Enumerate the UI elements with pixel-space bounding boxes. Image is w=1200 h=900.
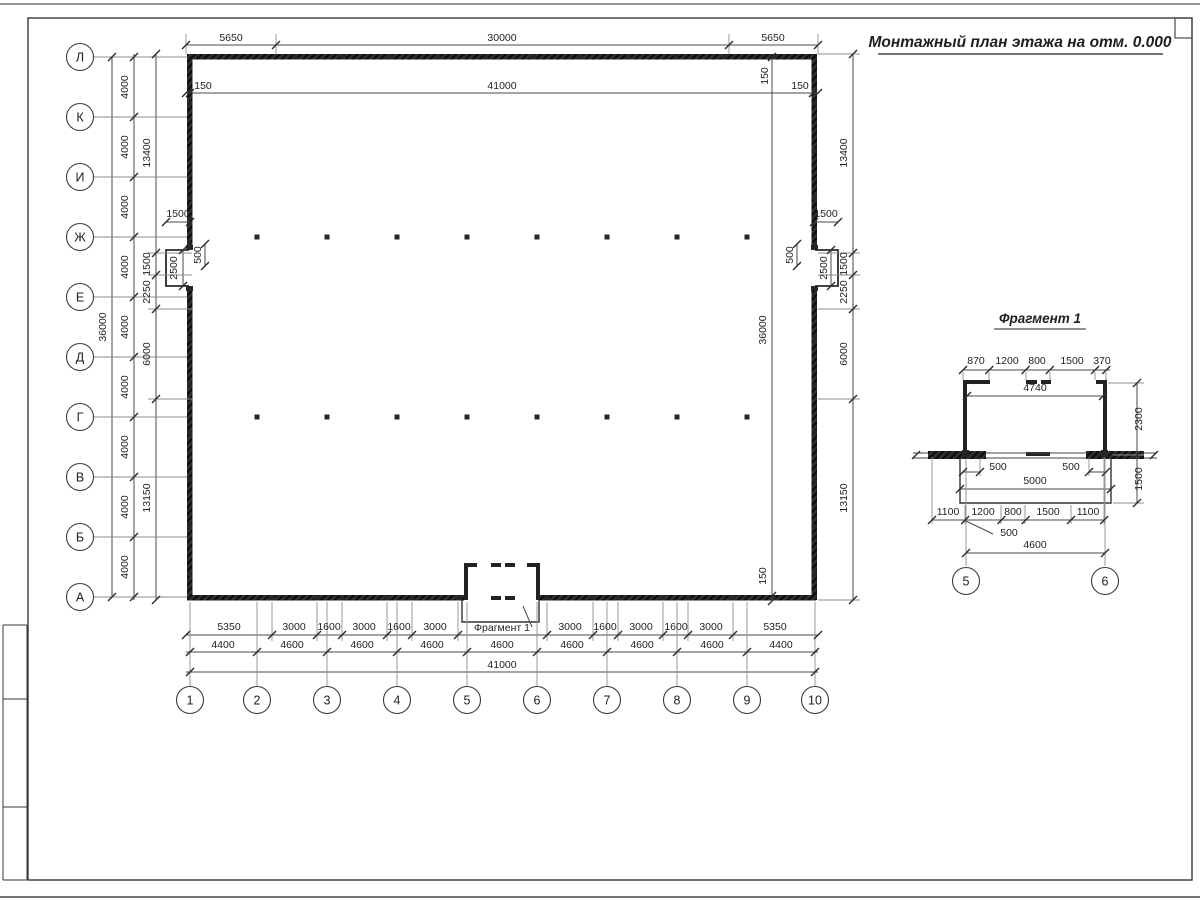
dim-label: 3000 [423, 621, 447, 633]
dim-label: 150 [194, 80, 212, 92]
column-mark [187, 195, 192, 200]
dim-label: 4000 [119, 255, 131, 279]
column-mark [187, 430, 192, 435]
column-mark [674, 55, 679, 60]
dim-label: 41000 [487, 659, 516, 671]
wall-right-lower [812, 286, 818, 600]
portal-dash [505, 563, 515, 567]
dim-label: 4600 [420, 639, 444, 651]
column-mark [812, 148, 817, 153]
column-mark [325, 415, 330, 420]
wall-left-lower [187, 286, 193, 600]
stamp-strip [3, 625, 27, 880]
dim-label: 1500 [141, 252, 153, 276]
portal-dash [491, 596, 501, 600]
column-mark [187, 571, 192, 576]
dim-label: 6000 [141, 342, 153, 366]
column-mark [293, 55, 298, 60]
column-mark [187, 383, 192, 388]
dim-label: 2250 [141, 280, 153, 304]
column-mark [531, 55, 536, 60]
dim-label: 500 [989, 461, 1007, 473]
fragment-title: Фрагмент 1 [999, 311, 1081, 326]
fragment-flange-left [963, 380, 990, 384]
dim-label: 4600 [630, 639, 654, 651]
column-mark [545, 596, 550, 601]
column-mark [385, 596, 390, 601]
dim-label: 5650 [761, 32, 785, 44]
dim-label: 2250 [838, 280, 850, 304]
portal-dash [491, 563, 501, 567]
dim-label: 3000 [699, 621, 723, 633]
dim-label: 1500 [166, 208, 190, 220]
dim-label: 800 [1004, 506, 1022, 518]
leader-line [966, 521, 993, 534]
dim-label: 1600 [593, 621, 617, 633]
axis-label: 10 [808, 694, 822, 708]
column-mark [187, 101, 192, 106]
dim-label: 4600 [490, 639, 514, 651]
dim-label: 1600 [317, 621, 341, 633]
column-mark [315, 596, 320, 601]
dim-label: 1500 [814, 208, 838, 220]
column-mark [605, 235, 610, 240]
dim-label: 800 [1028, 355, 1046, 367]
dim-label: 4000 [119, 435, 131, 459]
column-mark [675, 235, 680, 240]
dim-label: 1600 [387, 621, 411, 633]
column-mark [187, 524, 192, 529]
axis-label: А [76, 591, 85, 605]
column-mark [745, 415, 750, 420]
column-mark [616, 596, 621, 601]
column-mark [410, 596, 415, 601]
dim-label: 150 [757, 567, 769, 585]
column-mark [731, 596, 736, 601]
axis-label: Д [76, 351, 85, 365]
dim-label: 4000 [119, 555, 131, 579]
axis-label: 3 [324, 694, 331, 708]
dim-label: 2300 [1133, 407, 1145, 431]
column-mark [465, 415, 470, 420]
column-mark [465, 235, 470, 240]
dim-label: 36000 [757, 315, 769, 344]
drawing-canvas: Монтажный план этажа на отм. 0.000 Фрагм… [0, 0, 1200, 900]
column-mark [456, 596, 461, 601]
column-mark [255, 235, 260, 240]
column-mark [812, 101, 817, 106]
portal-flange-right [527, 563, 540, 567]
axis-label: Л [76, 51, 84, 65]
dim-label: 370 [1093, 355, 1111, 367]
axis-label: 5 [963, 575, 970, 589]
axis-label: 2 [254, 694, 261, 708]
column-mark [270, 596, 275, 601]
portal-jamb-left [464, 563, 468, 600]
axis-label: 7 [604, 694, 611, 708]
axis-label: 1 [187, 694, 194, 708]
column-mark [812, 524, 817, 529]
column-mark [325, 235, 330, 240]
dim-label: 1500 [838, 252, 850, 276]
column-mark [811, 245, 818, 250]
dim-label: 13150 [838, 483, 850, 512]
dim-label: 4000 [119, 315, 131, 339]
column-mark [187, 477, 192, 482]
entrance-portal [462, 563, 540, 622]
column-mark [812, 571, 817, 576]
dim-label: 4400 [211, 639, 235, 651]
column-mark [811, 286, 818, 291]
dim-label: 1200 [995, 355, 1019, 367]
dim-label: 13400 [141, 138, 153, 167]
dim-label: 500 [1000, 527, 1018, 539]
column-mark [591, 596, 596, 601]
dim-label: 3000 [352, 621, 376, 633]
axis-label: 9 [744, 694, 751, 708]
column-mark [1101, 450, 1108, 457]
column-mark [812, 336, 817, 341]
dim-label: 4740 [1023, 382, 1047, 394]
column-mark [341, 55, 346, 60]
dim-label: 4000 [119, 195, 131, 219]
axis-label: И [76, 171, 85, 185]
dim-label: 1200 [971, 506, 995, 518]
dim-label: 30000 [487, 32, 516, 44]
dim-label: 1500 [1133, 467, 1145, 491]
dim-label: 1600 [664, 621, 688, 633]
column-mark [484, 55, 489, 60]
column-mark [395, 415, 400, 420]
dim-label: 13150 [141, 483, 153, 512]
dim-label: 4400 [769, 639, 793, 651]
column-mark [187, 336, 192, 341]
portal-dash [505, 596, 515, 600]
dim-label: 36000 [97, 312, 109, 341]
dim-label: 1100 [1077, 506, 1100, 518]
axis-label: 8 [674, 694, 681, 708]
column-mark [395, 235, 400, 240]
column-mark [812, 430, 817, 435]
dim-label: 3000 [558, 621, 582, 633]
column-mark [436, 55, 441, 60]
sheet-frame [0, 4, 1200, 897]
column-mark [535, 415, 540, 420]
fragment-wall-right [1103, 380, 1107, 455]
dim-label: 870 [967, 355, 985, 367]
building-walls [166, 54, 838, 601]
frame-border [28, 18, 1192, 880]
dim-label: 2500 [168, 256, 180, 280]
dim-label: 4600 [1023, 539, 1047, 551]
dim-label: 6000 [838, 342, 850, 366]
dim-label: 5350 [763, 621, 787, 633]
column-mark [186, 286, 193, 291]
dim-label: 500 [192, 246, 204, 264]
column-mark [675, 415, 680, 420]
dim-label: 4600 [350, 639, 374, 651]
dim-label: 4000 [119, 375, 131, 399]
frame-corner-cell [1175, 18, 1192, 38]
dim-label: 1100 [937, 506, 960, 518]
dim-label: 3000 [629, 621, 653, 633]
column-mark [255, 415, 260, 420]
column-mark [686, 596, 691, 601]
dim-label: 5000 [1023, 475, 1047, 487]
dim-label: 150 [791, 80, 809, 92]
dim-label: 5350 [217, 621, 241, 633]
axis-label: 6 [1102, 575, 1109, 589]
column-mark [388, 55, 393, 60]
dim-label: 4000 [119, 75, 131, 99]
axis-label: 5 [464, 694, 471, 708]
column-mark [340, 596, 345, 601]
column-mark [579, 55, 584, 60]
column-mark [812, 195, 817, 200]
column-mark [187, 148, 192, 153]
dim-label: 5650 [219, 32, 243, 44]
dim-label: 1500 [1060, 355, 1084, 367]
axis-label: Е [76, 291, 84, 305]
column-mark [962, 450, 969, 457]
axis-label: 4 [394, 694, 401, 708]
dim-label: 3000 [282, 621, 306, 633]
fragment-wall-hatch-left [928, 451, 986, 459]
porch-outline [462, 600, 539, 622]
axis-label: 6 [534, 694, 541, 708]
portal-flange-left [464, 563, 477, 567]
dim-label: 4600 [700, 639, 724, 651]
dim-label: 4600 [560, 639, 584, 651]
dim-label: 4000 [119, 135, 131, 159]
axis-label: Г [77, 411, 84, 425]
axis-label: В [76, 471, 84, 485]
dim-label: 4000 [119, 495, 131, 519]
axis-label: К [76, 111, 84, 125]
column-mark [745, 235, 750, 240]
portal-jamb-right [536, 563, 540, 600]
column-mark [535, 235, 540, 240]
wall-bottom-left [187, 595, 464, 601]
dim-label: 500 [784, 246, 796, 264]
drawing-title: Монтажный план этажа на отм. 0.000 [868, 34, 1171, 51]
column-mark [626, 55, 631, 60]
fragment-flange-right [1096, 380, 1107, 384]
column-mark [812, 383, 817, 388]
dim-label: Фрагмент 1 [474, 622, 530, 634]
drawing-sheet: Монтажный план этажа на отм. 0.000 Фрагм… [0, 0, 1200, 900]
dim-label: 1500 [1036, 506, 1060, 518]
axis-label: Б [76, 531, 84, 545]
dim-label: 4600 [280, 639, 304, 651]
column-mark [605, 415, 610, 420]
axis-label: Ж [74, 231, 86, 245]
column-mark [661, 596, 666, 601]
dim-label: 500 [1062, 461, 1080, 473]
dim-label: 13400 [838, 138, 850, 167]
fragment-wall-left [963, 380, 967, 455]
column-mark [812, 477, 817, 482]
dim-label: 41000 [487, 80, 516, 92]
column-mark [722, 55, 727, 60]
dim-label: 150 [759, 67, 771, 85]
dim-label: 2500 [818, 256, 830, 280]
